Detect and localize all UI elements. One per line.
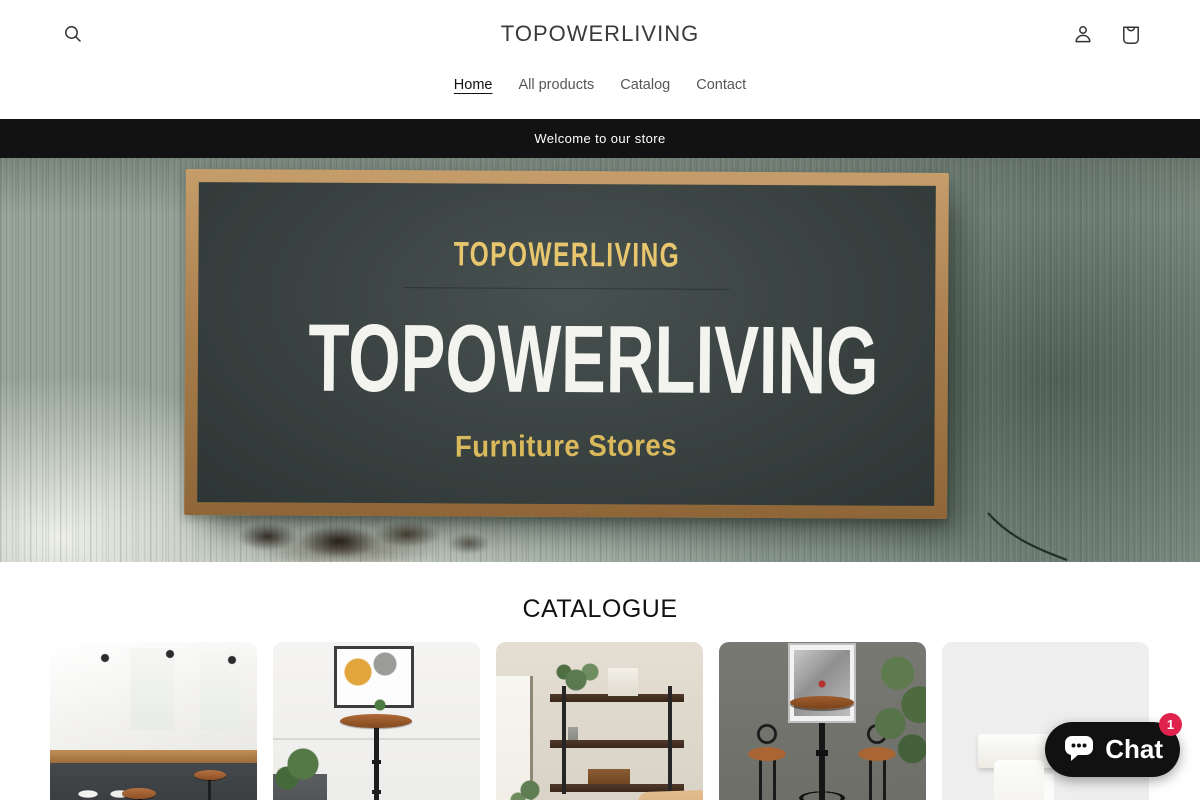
nav-item-all-products[interactable]: All products — [518, 77, 594, 93]
chat-bubble-icon — [1062, 733, 1096, 766]
announcement-bar: Welcome to our store — [0, 119, 1200, 158]
sign-top-line: TOPOWERLIVING — [302, 235, 833, 277]
account-button[interactable] — [1067, 18, 1099, 50]
cart-button[interactable] — [1115, 18, 1147, 50]
hanging-wire-icon — [955, 498, 1085, 562]
cart-icon — [1119, 22, 1143, 46]
store-title: TOPOWERLIVING — [0, 0, 1200, 47]
search-icon — [61, 22, 85, 46]
nav-item-home[interactable]: Home — [454, 77, 493, 93]
product-card[interactable] — [273, 642, 480, 800]
main-nav: Home All products Catalog Contact — [0, 77, 1200, 93]
nav-item-catalog[interactable]: Catalog — [620, 77, 670, 93]
search-button[interactable] — [57, 18, 89, 50]
sign-subtitle: Furniture Stores — [227, 428, 905, 466]
chat-unread-badge: 1 — [1159, 713, 1182, 736]
sign-main-line: TOPOWERLIVING — [308, 311, 824, 410]
sign-divider — [405, 287, 729, 290]
account-icon — [1071, 22, 1095, 46]
chat-button[interactable]: Chat 1 — [1045, 722, 1180, 777]
product-card[interactable] — [496, 642, 703, 800]
wall-stain — [190, 516, 500, 562]
sign-panel: TOPOWERLIVING TOPOWERLIVING Furniture St… — [197, 182, 936, 506]
hero-banner: TOPOWERLIVING TOPOWERLIVING Furniture St… — [0, 158, 1200, 562]
site-header: TOPOWERLIVING Home All products Catalog … — [0, 0, 1200, 119]
store-sign: TOPOWERLIVING TOPOWERLIVING Furniture St… — [184, 169, 949, 519]
nav-item-contact[interactable]: Contact — [696, 77, 746, 93]
product-card[interactable] — [719, 642, 926, 800]
catalogue-heading: CATALOGUE — [0, 595, 1200, 624]
product-grid — [0, 642, 1200, 800]
announcement-text: Welcome to our store — [534, 131, 665, 146]
product-card[interactable] — [50, 642, 257, 800]
catalogue-section: CATALOGUE — [0, 562, 1200, 800]
chat-label: Chat — [1105, 734, 1163, 765]
